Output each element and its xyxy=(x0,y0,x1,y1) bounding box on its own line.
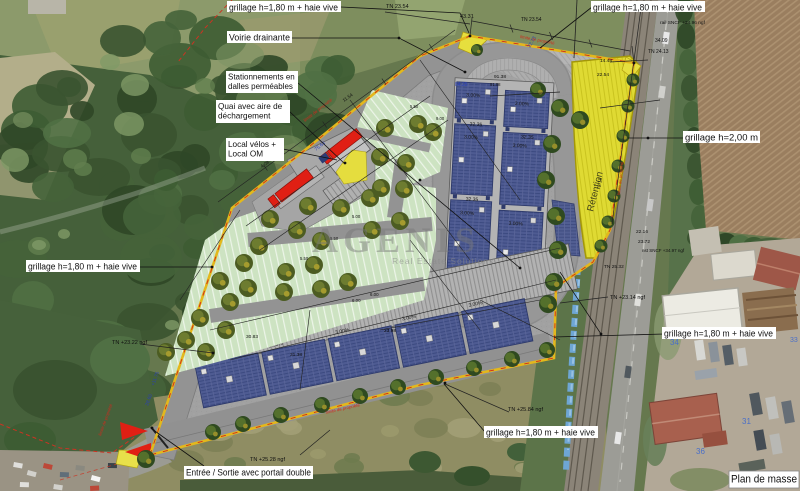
svg-text:Stationnements en: Stationnements en xyxy=(228,73,295,82)
svg-text:Plan de masse: Plan de masse xyxy=(731,474,797,486)
svg-text:grillage h=1,80 m + haie vive: grillage h=1,80 m + haie vive xyxy=(28,261,137,271)
svg-text:Quai avec aire de: Quai avec aire de xyxy=(218,102,283,111)
svg-text:Entrée / Sortie avec portail d: Entrée / Sortie avec portail double xyxy=(186,467,311,477)
svg-text:5.00: 5.00 xyxy=(352,214,361,219)
svg-text:3.00%: 3.00% xyxy=(512,143,527,150)
svg-text:23.98: 23.98 xyxy=(384,328,396,334)
svg-text:91.38: 91.38 xyxy=(494,74,506,80)
svg-text:14.48: 14.48 xyxy=(600,58,612,64)
svg-text:grillage h=2,00 m: grillage h=2,00 m xyxy=(685,132,758,142)
svg-text:31.38: 31.38 xyxy=(290,352,302,358)
svg-text:31: 31 xyxy=(742,417,751,426)
svg-text:TN +23.22 ngf: TN +23.22 ngf xyxy=(112,340,147,346)
svg-text:5.50: 5.50 xyxy=(410,104,419,109)
svg-text:TN 23.54: TN 23.54 xyxy=(521,17,542,23)
svg-text:grillage h=1,80 m + haie vive: grillage h=1,80 m + haie vive xyxy=(664,328,773,338)
svg-text:9.00: 9.00 xyxy=(436,116,445,121)
svg-text:déchargement: déchargement xyxy=(218,112,271,121)
svg-text:Real Estate Solutions: Real Estate Solutions xyxy=(392,256,494,266)
svg-text:nst SNCF +34.97 ngf: nst SNCF +34.97 ngf xyxy=(642,248,685,253)
svg-text:84.25: 84.25 xyxy=(455,82,468,88)
svg-text:34: 34 xyxy=(670,338,679,347)
svg-text:23.72: 23.72 xyxy=(638,239,650,245)
svg-text:33: 33 xyxy=(790,337,798,344)
svg-text:grillage h=1,80 m + haie vive: grillage h=1,80 m + haie vive xyxy=(229,2,338,12)
svg-text:3.00%: 3.00% xyxy=(464,134,479,141)
svg-text:34.09: 34.09 xyxy=(655,38,668,44)
svg-text:dalles perméables: dalles perméables xyxy=(228,82,293,91)
svg-text:AGENIS: AGENIS xyxy=(312,220,480,260)
svg-text:3.00%: 3.00% xyxy=(466,92,481,99)
svg-text:32.35: 32.35 xyxy=(466,196,479,203)
svg-text:Voirie drainante: Voirie drainante xyxy=(229,32,290,42)
svg-text:30.83: 30.83 xyxy=(246,334,258,340)
svg-text:TN +23.14 ngf: TN +23.14 ngf xyxy=(610,295,645,301)
svg-text:22.16: 22.16 xyxy=(636,229,648,235)
svg-text:TN +25.84 ngf: TN +25.84 ngf xyxy=(508,407,543,413)
svg-text:32.35: 32.35 xyxy=(470,122,483,129)
svg-text:3.00%: 3.00% xyxy=(508,221,523,228)
svg-text:6.00: 6.00 xyxy=(352,298,361,303)
svg-text:TN 24.13: TN 24.13 xyxy=(648,49,669,55)
svg-text:TN 25.32: TN 25.32 xyxy=(604,264,624,270)
svg-text:3.00%: 3.00% xyxy=(460,210,475,217)
svg-text:Local OM: Local OM xyxy=(228,150,263,159)
svg-text:32.35: 32.35 xyxy=(521,134,534,141)
svg-text:5.50: 5.50 xyxy=(300,256,309,261)
svg-text:22.54: 22.54 xyxy=(597,72,609,78)
svg-text:3.00%: 3.00% xyxy=(515,101,530,108)
svg-text:grillage h=1,80 m + haie vive: grillage h=1,80 m + haie vive xyxy=(486,427,595,437)
svg-text:grillage h=1,80 m + haie vive: grillage h=1,80 m + haie vive xyxy=(593,2,702,12)
svg-text:6.00: 6.00 xyxy=(370,292,379,297)
svg-text:91.08: 91.08 xyxy=(490,82,501,87)
svg-text:Local vélos +: Local vélos + xyxy=(228,140,276,149)
svg-text:36: 36 xyxy=(696,447,705,456)
svg-text:TN +25.28 ngf: TN +25.28 ngf xyxy=(250,457,285,463)
svg-text:rail SNCF +34.96 ngf: rail SNCF +34.96 ngf xyxy=(660,20,706,26)
